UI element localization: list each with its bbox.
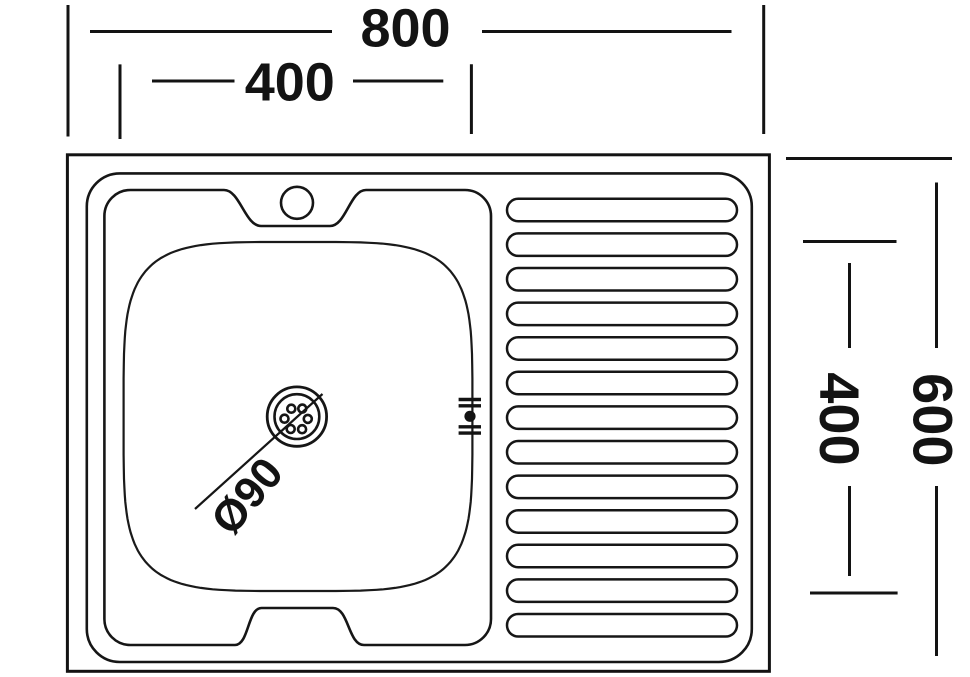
svg-text:600: 600 <box>902 373 965 466</box>
svg-text:400: 400 <box>245 53 335 113</box>
svg-text:800: 800 <box>360 0 450 58</box>
svg-text:400: 400 <box>808 372 871 465</box>
